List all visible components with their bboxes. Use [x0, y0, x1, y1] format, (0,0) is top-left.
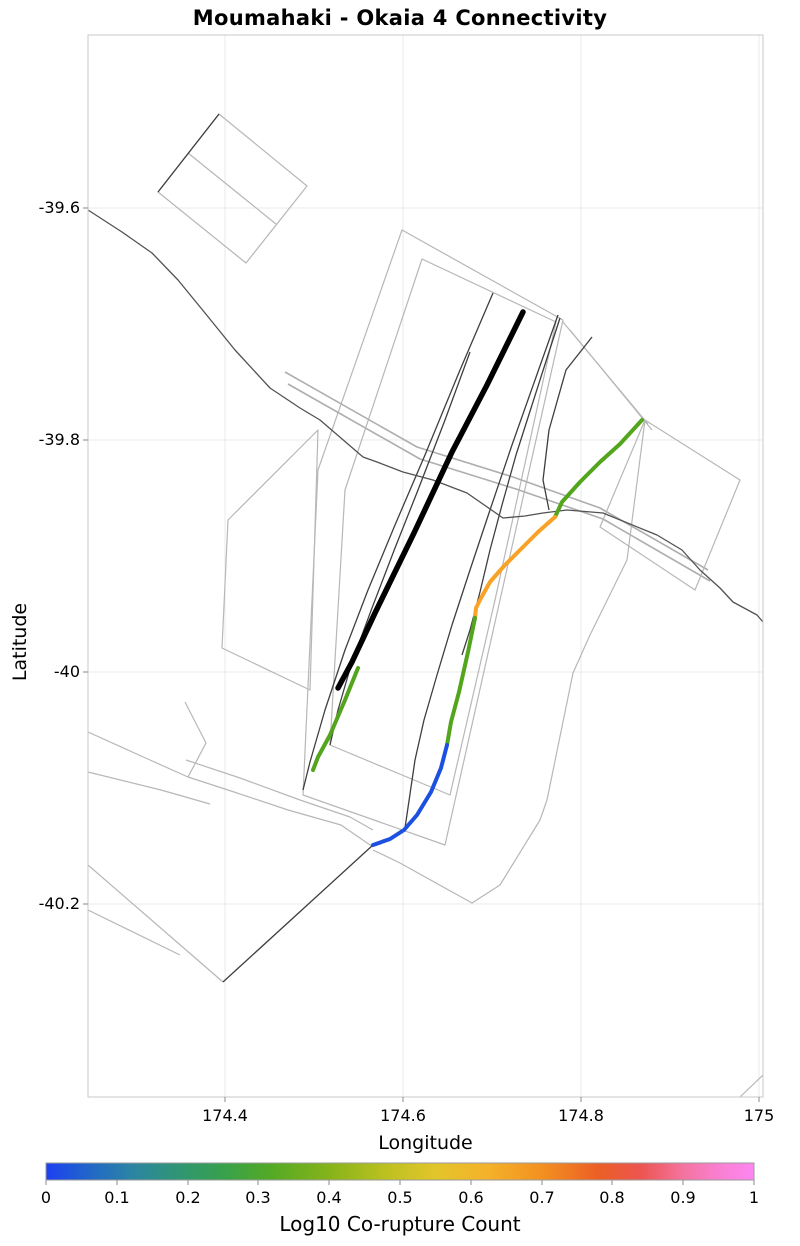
fault-trace-southwest-long	[223, 845, 373, 982]
chart-title: Moumahaki - Okaia 4 Connectivity	[0, 6, 800, 30]
colorbar-tick-label: 0	[16, 1188, 76, 1207]
fault-rect-upper-left-divider	[188, 153, 276, 224]
coastline	[88, 210, 763, 622]
x-tick-label: 174.4	[185, 1106, 265, 1125]
lower-left-quad-edge-a	[88, 865, 223, 982]
colorbar-tick-label: 0.1	[87, 1188, 147, 1207]
corupture-segment-green-upper	[555, 420, 642, 517]
left-bulge-polygon	[222, 430, 318, 690]
colorbar-tick-label: 0.4	[299, 1188, 359, 1207]
y-tick-label: -40	[24, 662, 80, 681]
highlighted-fault-moumahaki-okaia	[338, 312, 523, 688]
colorbar	[46, 1163, 754, 1180]
colorbar-tick-label: 0.2	[158, 1188, 218, 1207]
corupture-segment-green-lower	[447, 618, 475, 745]
map-features	[88, 114, 763, 1097]
x-tick-label: 174.8	[541, 1106, 621, 1125]
figure: Moumahaki - Okaia 4 Connectivity Longitu…	[0, 0, 800, 1246]
lower-left-line-b	[88, 772, 210, 804]
fault-trace-curvy-right	[543, 337, 592, 510]
colorbar-tick-label: 1	[724, 1188, 784, 1207]
bottom-band-edge-a	[185, 702, 373, 847]
colorbar-tick-label: 0.5	[370, 1188, 430, 1207]
y-tick-label: -39.8	[24, 430, 80, 449]
colorbar-label: Log10 Co-rupture Count	[46, 1212, 754, 1236]
x-axis-label: Longitude	[88, 1132, 763, 1154]
cross-band-upper-a	[285, 372, 708, 570]
bottom-right-corner-scrap	[740, 1075, 763, 1097]
lower-left-line-a	[88, 732, 188, 777]
colorbar-tick-label: 0.6	[441, 1188, 501, 1207]
bottom-band-edge-b	[186, 760, 373, 830]
fault-trace-upper-left-dark-edge	[158, 114, 219, 192]
colorbar-tick-label: 0.7	[512, 1188, 572, 1207]
plot-frame	[88, 35, 763, 1097]
right-tall-polygon-edge	[373, 420, 645, 903]
colorbar-tick-label: 0.3	[228, 1188, 288, 1207]
corupture-segment-green-short	[313, 668, 358, 770]
y-tick-label: -39.6	[24, 198, 80, 217]
x-tick-label: 175	[719, 1106, 799, 1125]
map-svg	[0, 0, 800, 1246]
y-tick-label: -40.2	[24, 894, 80, 913]
x-tick-label: 174.6	[363, 1106, 443, 1125]
colorbar-tick-label: 0.9	[653, 1188, 713, 1207]
bundle-line-b	[570, 330, 652, 430]
colorbar-tick-label: 0.8	[582, 1188, 642, 1207]
grid-lines	[88, 35, 763, 1097]
y-axis-label: Latitude	[9, 562, 31, 722]
